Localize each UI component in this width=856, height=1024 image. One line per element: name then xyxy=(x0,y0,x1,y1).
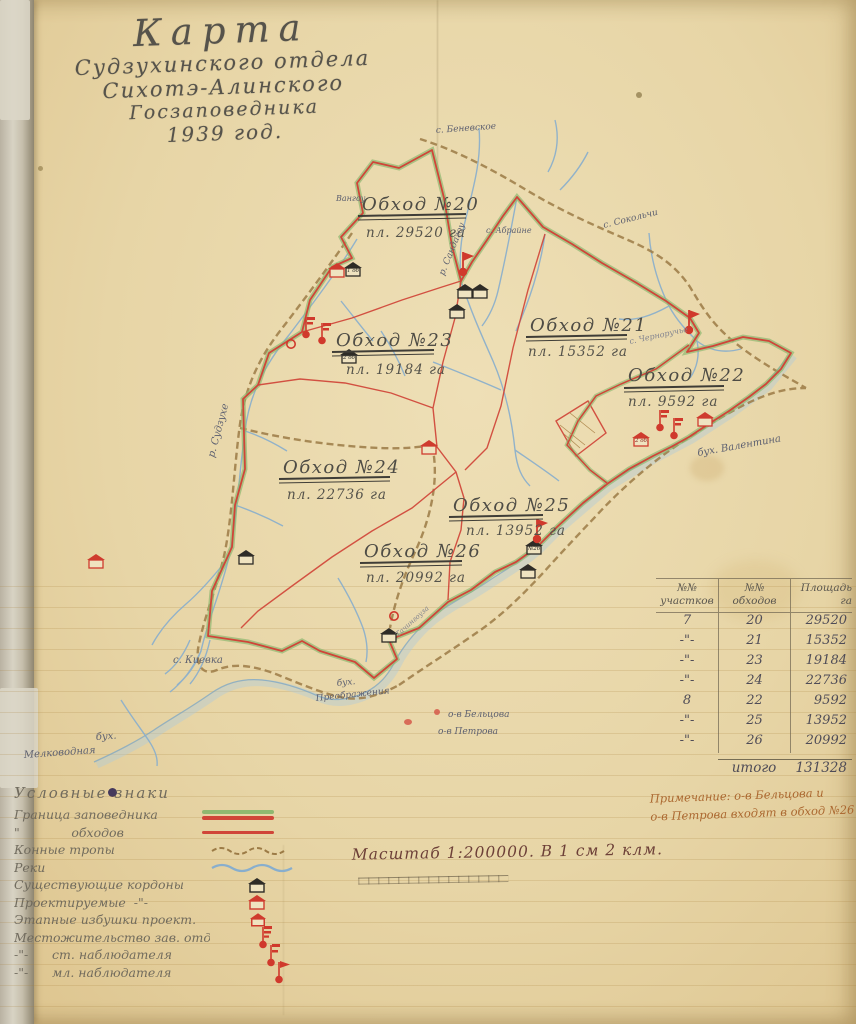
projected-kordon-symbol xyxy=(244,893,270,911)
legend-item: Граница заповедника xyxy=(14,806,362,824)
obkhod-25-label: Обход №25 xyxy=(453,495,570,516)
projected-house-icon xyxy=(696,412,714,426)
house-label: 1 об. xyxy=(347,267,361,274)
legend-item: Проектируемые -"- xyxy=(14,894,362,912)
col-header: обходов xyxy=(719,595,790,608)
table-row: -"-2422736 xyxy=(656,673,852,693)
existing-kordon-symbol xyxy=(244,876,270,894)
house-label: №26 xyxy=(527,546,541,552)
table-row: -"-2620992 xyxy=(656,733,852,753)
obkhod-23-label: Обход №23 xyxy=(336,330,453,351)
area-table: №№участков №№обходов Площадьга 72029520 … xyxy=(656,578,852,823)
legend-item: -"- мл. наблюдателя xyxy=(14,964,362,982)
bay-melkovodnaya-label: Мелководная xyxy=(22,745,95,761)
table-row: 8229592 xyxy=(656,693,852,713)
obkhod-24-area: пл. 22736 га xyxy=(287,487,387,503)
legend-item: Этапные избушки проект. xyxy=(14,911,362,929)
total-value: 131328 xyxy=(790,759,852,783)
col-header: га xyxy=(791,595,852,608)
table-header-row: №№участков №№обходов Площадьга xyxy=(656,579,852,613)
legend-item: Местожительство зав. отделом xyxy=(14,929,362,947)
col-header: №№ xyxy=(719,582,790,595)
kordon-house-icon xyxy=(448,304,466,318)
trail-symbol xyxy=(210,844,294,856)
place-kievka: с. Киевка xyxy=(173,655,223,666)
kordon-house-icon xyxy=(237,550,255,564)
bay-valentina-label: бух. Валентина xyxy=(697,433,782,459)
table-row: 72029520 xyxy=(656,613,852,633)
projected-house-icon xyxy=(87,554,105,568)
island-petrova-label: о-в Петрова xyxy=(438,727,498,737)
table-note: Примечание: о-в Бельцова и о-в Петрова в… xyxy=(649,784,856,827)
obkhod-25-area: пл. 13952 га xyxy=(466,523,566,539)
place-sokolchi: с. Сокольчи xyxy=(602,208,659,231)
legend-item: Реки xyxy=(14,859,362,877)
obkhod-24-label: Обход №24 xyxy=(283,457,400,478)
observer-flag-icon xyxy=(656,410,669,431)
obkhod-23-area: пл. 19184 га xyxy=(346,362,446,378)
col-header: участков xyxy=(656,595,718,608)
total-label: итого xyxy=(718,759,790,783)
kordon-house-icon xyxy=(456,284,474,298)
obkhod-21-label: Обход №21 xyxy=(530,315,647,336)
junior-observer-flag-symbol xyxy=(274,960,290,984)
legend: Условные знаки Граница заповедника " обх… xyxy=(14,784,362,981)
legend-item: -"- ст. наблюдателя xyxy=(14,946,362,964)
house-label: 2 об. xyxy=(342,354,357,361)
island-beltsova-label: о-в Бельцова xyxy=(448,710,509,720)
bay-melkovodnaya-label: бух. xyxy=(95,731,116,743)
table-total-row: итого 131328 xyxy=(656,759,852,783)
obkhod-22-area: пл. 9592 га xyxy=(628,394,718,410)
col-header: Площадь xyxy=(791,582,852,595)
table-row: -"-2319184 xyxy=(656,653,852,673)
place-vangou: Вангоу xyxy=(335,194,366,203)
scale-note: Масштаб 1:200000. В 1 см 2 клм. xyxy=(352,840,664,884)
obkhod-21-area: пл. 15352 га xyxy=(528,344,628,360)
place-abrayne: с. Абрайне xyxy=(486,226,532,235)
table-row: -"-2115352 xyxy=(656,633,852,653)
river-symbol xyxy=(210,861,294,873)
obkhod-20-label: Обход №20 xyxy=(362,194,479,215)
place-benevskoe: с. Беневское xyxy=(436,122,497,136)
legend-item: Конные тропы xyxy=(14,841,362,859)
obkhod-26-area: пл. 20992 га xyxy=(366,570,466,586)
reserve-border-symbol xyxy=(202,808,274,822)
islands xyxy=(404,709,440,725)
legend-item: " обходов xyxy=(14,824,362,842)
observer-mark-icon xyxy=(390,612,398,620)
obkhod-borders xyxy=(241,234,606,628)
kordon-house-icon xyxy=(471,284,489,298)
obkhod-26-label: Обход №26 xyxy=(364,541,481,562)
observer-flag-icon xyxy=(670,418,683,439)
map-sheet: Карта Судзухинского отдела Сихотэ-Алинск… xyxy=(0,0,856,1024)
table-row: -"-2513952 xyxy=(656,713,852,733)
bay-preobrazheniya-label: бух. xyxy=(336,676,356,689)
projected-house-icon xyxy=(420,440,438,454)
obkhod-border-symbol xyxy=(202,829,274,836)
col-header: №№ xyxy=(656,582,718,595)
obkhod-22-label: Обход №22 xyxy=(628,365,745,386)
legend-item: Существующие кордоны xyxy=(14,876,362,894)
river-sudzuhe-label: р. Судзухе xyxy=(206,402,231,458)
house-label: 2 об. xyxy=(634,437,649,444)
legend-heading: Условные знаки xyxy=(14,784,362,802)
